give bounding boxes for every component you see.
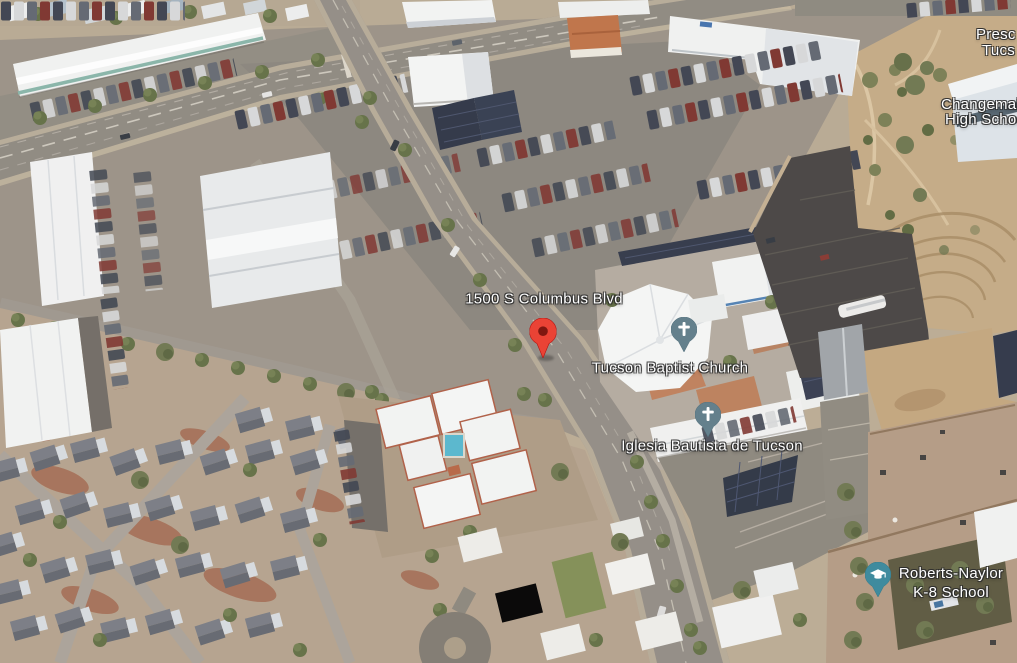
school-marker-roberts-naylor[interactable] (865, 562, 891, 598)
poi-label-line1: Changemaker (941, 97, 1017, 112)
red-pin-icon (530, 318, 557, 358)
address-label: 1500 S Columbus Blvd (465, 292, 623, 309)
poi-label-line2: K-8 School (899, 583, 1003, 602)
church-marker-iglesia-bautista[interactable] (695, 402, 721, 438)
poi-label-line1: Presc (976, 27, 1016, 43)
graduation-cap-icon (865, 562, 891, 598)
church-cross-icon (695, 402, 721, 438)
poi-label-line2: High School (941, 112, 1017, 127)
dropped-pin-marker[interactable] (530, 318, 557, 358)
poi-label-line2: Tucs (976, 43, 1016, 59)
poi-label-line1: Roberts-Naylor (899, 564, 1003, 583)
poi-label-changemaker[interactable]: Changemaker High School (941, 97, 1017, 127)
church-cross-icon (671, 317, 697, 353)
poi-label-tucson-baptist-church[interactable]: Tucson Baptist Church (592, 361, 748, 378)
poi-label-roberts-naylor[interactable]: Roberts-Naylor K-8 School (899, 564, 1003, 602)
church-marker-tucson-baptist[interactable] (671, 317, 697, 353)
satellite-map-viewport[interactable]: 1500 S Columbus Blvd Tucson Baptist Chur… (0, 0, 1017, 663)
poi-label-iglesia-bautista[interactable]: Iglesia Bautista de Tucson (621, 439, 803, 456)
poi-label-clipped-edge[interactable]: Presc Tucs (976, 27, 1016, 59)
